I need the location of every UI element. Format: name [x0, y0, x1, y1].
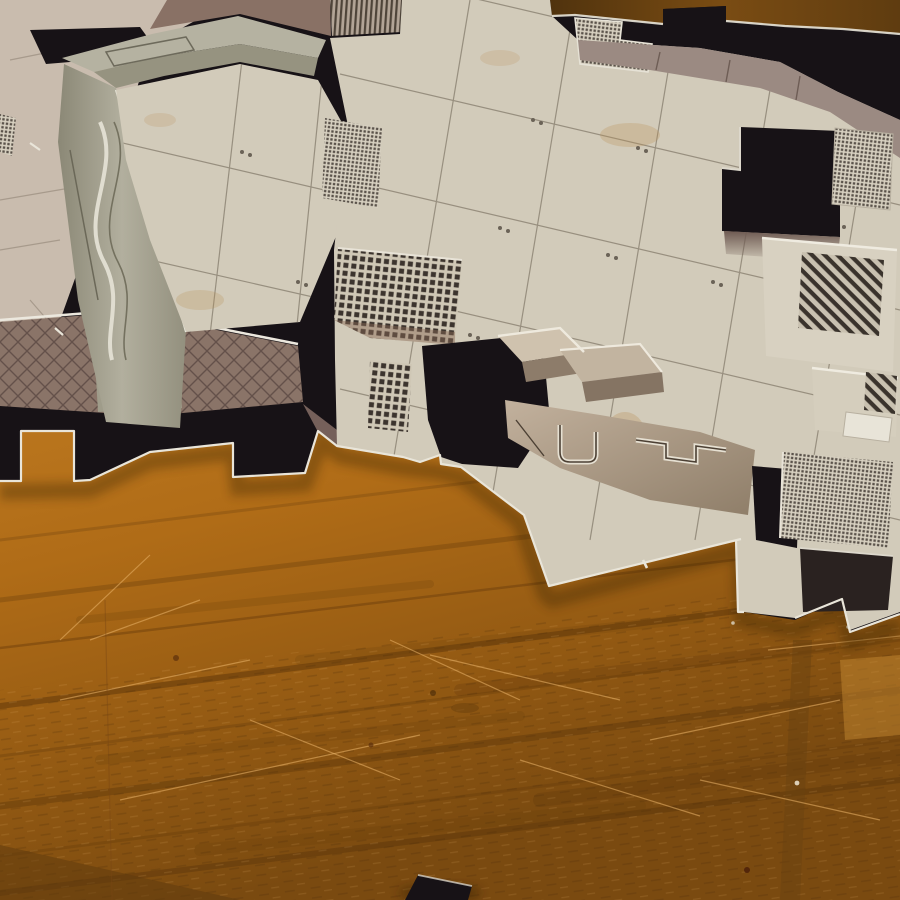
photo-stage: Sci-fi dungeon map tiles on a wooden tab… — [0, 0, 900, 900]
hatch-panel-stripes — [798, 252, 884, 336]
bottom-right-mesh — [780, 452, 893, 548]
lower-mesh-strip — [368, 360, 412, 432]
right-mesh-panel — [832, 128, 893, 210]
top-vent-panel — [330, 0, 402, 36]
lower-plate-stripes — [864, 372, 897, 414]
photo-canvas: Sci-fi dungeon map tiles on a wooden tab… — [0, 0, 900, 900]
wood-light-patch — [840, 655, 900, 740]
small-diamond-mesh — [322, 118, 382, 208]
bottom-right-dark-band — [800, 548, 893, 612]
